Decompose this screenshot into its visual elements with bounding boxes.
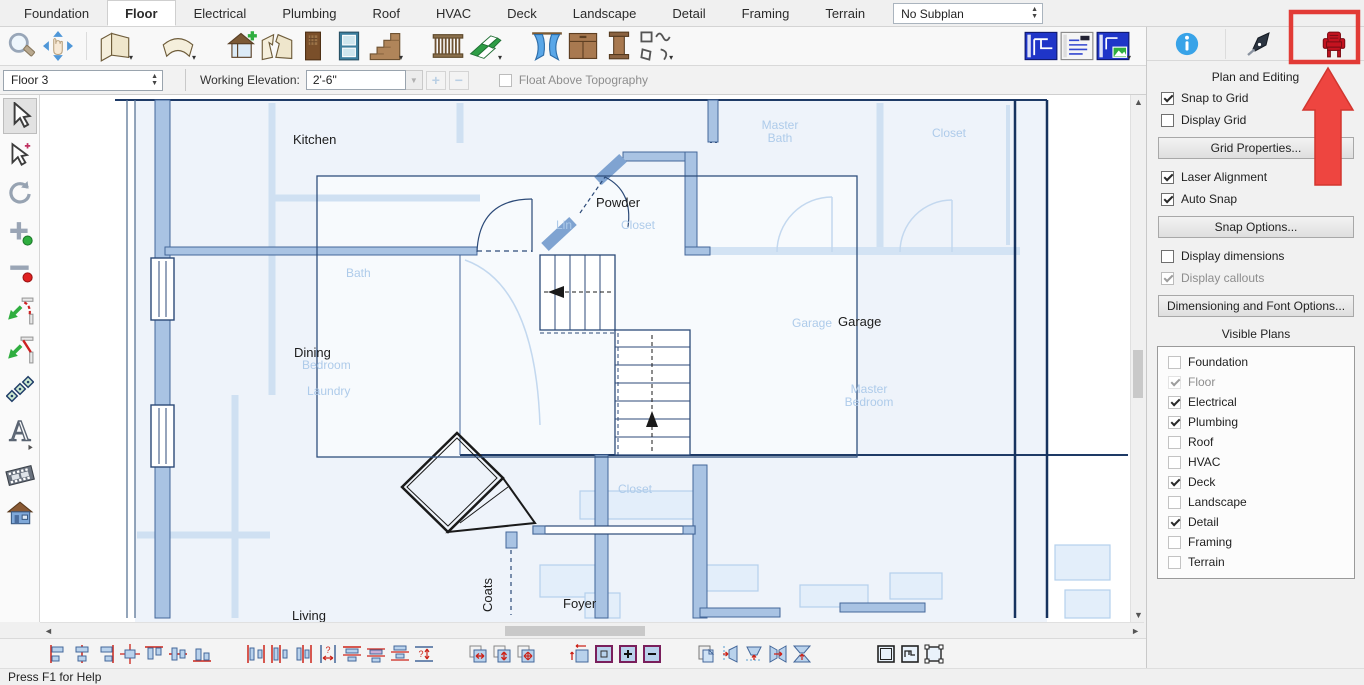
visible-plan-deck[interactable]: Deck bbox=[1158, 472, 1354, 492]
spinner-arrows-icon[interactable]: ▲▼ bbox=[151, 73, 158, 87]
svg-text:A: A bbox=[9, 415, 31, 447]
stairs-flyout-icon[interactable]: ▾ bbox=[399, 53, 403, 62]
horizontal-scrollbar[interactable]: ◄ ► bbox=[40, 622, 1144, 638]
tab-bar: Foundation Floor Electrical Plumbing Roo… bbox=[0, 0, 1364, 27]
snap-options-button[interactable]: Snap Options... bbox=[1158, 216, 1354, 238]
visible-plan-detail[interactable]: Detail bbox=[1158, 512, 1354, 532]
main-toolbar: ▾ ▾ ▾ ▾ ▾ ▾ bbox=[0, 27, 1146, 66]
plan-canvas[interactable]: Master Bath Closet Lin Closet Bath Bedro… bbox=[40, 95, 1130, 622]
zoom-icon[interactable] bbox=[4, 29, 40, 63]
pattern-tool[interactable] bbox=[3, 371, 37, 407]
align-bottom-icon[interactable] bbox=[190, 642, 214, 666]
subplan-select-value: No Subplan bbox=[901, 7, 964, 21]
set-size-icon[interactable] bbox=[568, 642, 592, 666]
visible-plan-plumbing[interactable]: Plumbing bbox=[1158, 412, 1354, 432]
add-node-tool[interactable] bbox=[3, 215, 37, 251]
right-panel-header bbox=[1147, 27, 1364, 61]
vertical-scrollbar[interactable]: ▲ ▼ bbox=[1130, 95, 1144, 622]
align-center-icon[interactable] bbox=[70, 642, 94, 666]
tab-plumbing[interactable]: Plumbing bbox=[264, 0, 354, 26]
faded-room-label: Closet bbox=[932, 127, 966, 140]
visible-plan-framing[interactable]: Framing bbox=[1158, 532, 1354, 552]
copy-region-icon[interactable] bbox=[694, 642, 718, 666]
elevation-decrease-button[interactable]: − bbox=[449, 71, 469, 90]
shapes-flyout-icon[interactable]: ▾ bbox=[669, 53, 673, 62]
mirror-horizontal-icon[interactable] bbox=[766, 642, 790, 666]
display-callouts-checkbox: Display callouts bbox=[1147, 267, 1364, 289]
snap-to-grid-checkbox[interactable]: Snap to Grid bbox=[1147, 87, 1364, 109]
plan-box-icon[interactable] bbox=[898, 642, 922, 666]
subplan-select[interactable]: No Subplan ▲▼ bbox=[893, 3, 1043, 24]
distribute-gap-vertical-icon[interactable] bbox=[388, 642, 412, 666]
room-label-garage: Garage bbox=[838, 314, 881, 329]
working-elevation-dropdown-icon[interactable]: ▼ bbox=[406, 70, 423, 90]
room-label-kitchen: Kitchen bbox=[293, 132, 336, 147]
edit-toolbar: ? ? bbox=[0, 638, 1146, 668]
right-panel: Plan and Editing Snap to Grid Display Gr… bbox=[1146, 27, 1364, 668]
select-objects-tool[interactable] bbox=[3, 98, 37, 134]
spinner-arrows-icon[interactable]: ▲▼ bbox=[1031, 6, 1038, 20]
floor-select-value: Floor 3 bbox=[11, 73, 48, 87]
handle-box-icon[interactable] bbox=[922, 642, 946, 666]
info-icon[interactable] bbox=[1169, 27, 1205, 61]
floor-plan-drawing bbox=[40, 95, 1130, 622]
straight-wall-icon[interactable] bbox=[97, 29, 133, 63]
room-label-powder: Powder bbox=[596, 195, 640, 210]
horizontal-scroll-thumb[interactable] bbox=[505, 626, 645, 636]
faded-room-label: Master Bath bbox=[756, 119, 804, 145]
distribute-vertical-icon[interactable] bbox=[364, 642, 388, 666]
stairs-icon[interactable] bbox=[367, 29, 403, 63]
tab-detail[interactable]: Detail bbox=[654, 0, 723, 26]
display-grid-checkbox[interactable]: Display Grid bbox=[1147, 109, 1364, 131]
skew-right-icon[interactable] bbox=[718, 642, 742, 666]
tab-terrain[interactable]: Terrain bbox=[807, 0, 883, 26]
mirror-vertical-icon[interactable] bbox=[790, 642, 814, 666]
display-dimensions-checkbox[interactable]: Display dimensions bbox=[1147, 245, 1364, 267]
scroll-left-icon[interactable]: ◄ bbox=[44, 626, 53, 636]
distribute-horizontal-icon[interactable] bbox=[268, 642, 292, 666]
break-wall-icon[interactable] bbox=[259, 29, 295, 63]
stretch-horizontal-icon[interactable] bbox=[466, 642, 490, 666]
float-above-topography-checkbox[interactable]: Float Above Topography bbox=[485, 69, 648, 91]
visible-plan-hvac[interactable]: HVAC bbox=[1158, 452, 1354, 472]
center-both-icon[interactable] bbox=[118, 642, 142, 666]
curtain-icon[interactable] bbox=[529, 29, 565, 63]
layout-view-icon[interactable] bbox=[1059, 29, 1095, 63]
tab-landscape[interactable]: Landscape bbox=[555, 0, 655, 26]
special-select-tool[interactable] bbox=[3, 137, 37, 173]
furniture-icon[interactable] bbox=[1316, 27, 1352, 61]
camera-view-tool[interactable] bbox=[3, 496, 37, 532]
faded-room-label: Bath bbox=[346, 267, 371, 280]
svg-text:?: ? bbox=[418, 649, 423, 659]
scroll-down-icon[interactable]: ▼ bbox=[1134, 610, 1143, 620]
faded-room-label: Lin bbox=[556, 219, 572, 232]
visible-plan-foundation[interactable]: Foundation bbox=[1158, 352, 1354, 372]
faded-room-label: Laundry bbox=[307, 385, 350, 398]
toolbar-separator bbox=[86, 32, 87, 60]
laser-alignment-checkbox[interactable]: Laser Alignment bbox=[1147, 166, 1364, 188]
visible-plan-terrain[interactable]: Terrain bbox=[1158, 552, 1354, 572]
enlarge-icon[interactable] bbox=[616, 642, 640, 666]
distribute-gap-horizontal-icon[interactable] bbox=[292, 642, 316, 666]
floorbar-separator bbox=[185, 69, 186, 91]
straight-wall-flyout-icon[interactable]: ▾ bbox=[129, 53, 133, 62]
tab-roof[interactable]: Roof bbox=[355, 0, 418, 26]
remove-node-tool[interactable] bbox=[3, 254, 37, 290]
elevation-increase-button[interactable]: + bbox=[426, 71, 446, 90]
skew-down-icon[interactable] bbox=[742, 642, 766, 666]
align-left-icon[interactable] bbox=[46, 642, 70, 666]
tab-framing[interactable]: Framing bbox=[724, 0, 808, 26]
room-label-dining: Dining bbox=[294, 345, 331, 360]
align-right-icon[interactable] bbox=[94, 642, 118, 666]
faded-room-label: Master Bedroom bbox=[835, 383, 903, 409]
scroll-right-icon[interactable]: ► bbox=[1131, 626, 1140, 636]
railing-icon[interactable] bbox=[430, 29, 466, 63]
build-new-floor-icon[interactable] bbox=[223, 29, 259, 63]
rotate-tool[interactable] bbox=[3, 176, 37, 212]
visible-plans-list: Foundation Floor Electrical Plumbing Roo… bbox=[1157, 346, 1355, 579]
room-label-living: Living bbox=[292, 608, 326, 622]
working-elevation-input[interactable]: 2'-6" bbox=[306, 70, 406, 90]
cabinet-icon[interactable] bbox=[565, 29, 601, 63]
working-elevation-label: Working Elevation: bbox=[200, 73, 300, 87]
pen-icon[interactable] bbox=[1240, 27, 1276, 61]
set-horizontal-spacing-icon[interactable]: ? bbox=[316, 642, 340, 666]
left-tool-palette: A bbox=[0, 95, 40, 622]
float-above-topography-label: Float Above Topography bbox=[519, 73, 648, 87]
views-flyout-icon[interactable]: ▾ bbox=[1127, 53, 1131, 62]
tab-hvac[interactable]: HVAC bbox=[418, 0, 489, 26]
stretch-vertical-icon[interactable] bbox=[490, 642, 514, 666]
text-tool[interactable]: A bbox=[3, 410, 37, 454]
curved-wall-icon[interactable] bbox=[160, 29, 196, 63]
tab-deck[interactable]: Deck bbox=[489, 0, 555, 26]
status-text: Press F1 for Help bbox=[8, 670, 101, 684]
chamfer-corner-tool[interactable] bbox=[3, 332, 37, 368]
visible-plan-floor: Floor bbox=[1158, 372, 1354, 392]
floor-bar: Floor 3 ▲▼ Working Elevation: 2'-6" ▼ + … bbox=[0, 66, 1146, 95]
set-vertical-spacing-icon[interactable]: ? bbox=[412, 642, 436, 666]
visible-plans-title: Visible Plans bbox=[1147, 327, 1364, 341]
frame-object-icon[interactable] bbox=[592, 642, 616, 666]
walkthrough-tool[interactable] bbox=[3, 457, 37, 493]
align-top-icon[interactable] bbox=[142, 642, 166, 666]
shapes-icon[interactable] bbox=[637, 29, 673, 63]
status-bar: Press F1 for Help bbox=[0, 668, 1364, 685]
header-separator bbox=[1225, 29, 1226, 59]
curved-wall-flyout-icon[interactable]: ▾ bbox=[192, 53, 196, 62]
room-label-coats: Coats bbox=[480, 578, 495, 612]
visible-plan-roof[interactable]: Roof bbox=[1158, 432, 1354, 452]
faded-room-label: Bedroom bbox=[302, 359, 351, 372]
auto-snap-checkbox[interactable]: Auto Snap bbox=[1147, 188, 1364, 210]
column-icon[interactable] bbox=[601, 29, 637, 63]
plan-view-icon[interactable] bbox=[1023, 29, 1059, 63]
dimensioning-font-options-button[interactable]: Dimensioning and Font Options... bbox=[1158, 295, 1354, 317]
tab-electrical[interactable]: Electrical bbox=[176, 0, 265, 26]
visible-plan-electrical[interactable]: Electrical bbox=[1158, 392, 1354, 412]
grid-properties-button[interactable]: Grid Properties... bbox=[1158, 137, 1354, 159]
empty-box-icon[interactable] bbox=[874, 642, 898, 666]
reduce-icon[interactable] bbox=[640, 642, 664, 666]
fillet-corner-tool[interactable] bbox=[3, 293, 37, 329]
tab-foundation[interactable]: Foundation bbox=[6, 0, 107, 26]
tab-floor[interactable]: Floor bbox=[107, 0, 176, 26]
align-middle-icon[interactable] bbox=[166, 642, 190, 666]
flooring-icon[interactable] bbox=[466, 29, 502, 63]
door-icon[interactable] bbox=[295, 29, 331, 63]
room-label-foyer: Foyer bbox=[563, 596, 596, 611]
panel-title: Plan and Editing bbox=[1147, 70, 1364, 84]
flooring-flyout-icon[interactable]: ▾ bbox=[498, 53, 502, 62]
space-evenly-horizontal-icon[interactable] bbox=[244, 642, 268, 666]
visible-plan-landscape[interactable]: Landscape bbox=[1158, 492, 1354, 512]
vertical-scroll-thumb[interactable] bbox=[1133, 350, 1143, 398]
space-evenly-vertical-icon[interactable] bbox=[340, 642, 364, 666]
stretch-both-icon[interactable] bbox=[514, 642, 538, 666]
faded-room-label: Closet bbox=[618, 483, 652, 496]
picture-view-icon[interactable] bbox=[1095, 29, 1131, 63]
faded-room-label: Closet bbox=[621, 219, 655, 232]
pan-icon[interactable] bbox=[40, 29, 76, 63]
faded-room-label: Garage bbox=[792, 317, 832, 330]
svg-text:?: ? bbox=[325, 645, 330, 655]
floor-select[interactable]: Floor 3 ▲▼ bbox=[3, 70, 163, 91]
window-icon[interactable] bbox=[331, 29, 367, 63]
scroll-up-icon[interactable]: ▲ bbox=[1134, 97, 1143, 107]
